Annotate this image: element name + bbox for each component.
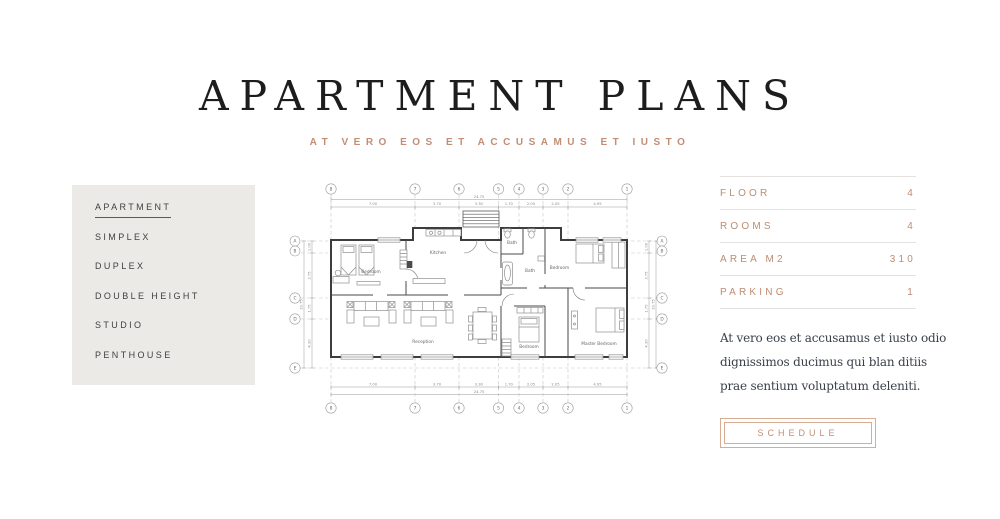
svg-text:3.75: 3.75 [644, 271, 648, 280]
spec-value: 4 [907, 221, 916, 232]
sidebar-item-simplex[interactable]: SIMPLEX [95, 232, 255, 262]
svg-text:1.00: 1.00 [307, 242, 311, 251]
sidebar-item-duplex[interactable]: DUPLEX [95, 261, 255, 291]
spec-row-rooms: ROOMS 4 [720, 210, 916, 243]
spec-value: 1 [907, 287, 916, 298]
svg-text:E: E [294, 366, 297, 372]
svg-text:2: 2 [567, 187, 570, 193]
svg-text:7.00: 7.00 [369, 202, 378, 206]
svg-text:1.00: 1.00 [644, 242, 648, 251]
spec-label: AREA M2 [720, 254, 786, 265]
svg-text:5: 5 [497, 406, 500, 412]
spec-value: 310 [890, 254, 916, 265]
room-label-bath-large: Bath [525, 268, 535, 274]
svg-text:8: 8 [330, 187, 333, 193]
schedule-button-label: SCHEDULE [757, 428, 838, 438]
spec-table: FLOOR 4 ROOMS 4 AREA M2 310 PARKING 1 [720, 176, 916, 309]
sidebar-item-studio[interactable]: STUDIO [95, 320, 255, 350]
svg-text:A: A [294, 239, 297, 245]
svg-text:10.75: 10.75 [651, 299, 655, 310]
floor-plan-svg: 24.75 7.00 3.70 3.30 1.70 2.05 2.05 4.95… [283, 178, 683, 423]
room-label-master-bedroom: Master Bedroom [581, 341, 616, 347]
svg-text:1: 1 [626, 187, 629, 193]
apartment-plans-page: APARTMENT PLANS AT VERO EOS ET ACCUSAMUS… [0, 0, 1000, 519]
floor-plan-drawing: 24.75 7.00 3.70 3.30 1.70 2.05 2.05 4.95… [283, 178, 683, 423]
svg-text:B: B [294, 249, 297, 255]
svg-text:4.95: 4.95 [593, 202, 602, 206]
svg-text:2.05: 2.05 [527, 382, 536, 386]
svg-text:4: 4 [518, 406, 521, 412]
room-label-bedroom-right: Bedroom [550, 265, 569, 271]
svg-text:E: E [661, 366, 664, 372]
svg-text:2.05: 2.05 [527, 202, 536, 206]
svg-text:4: 4 [518, 187, 521, 193]
spec-label: PARKING [720, 287, 787, 298]
sidebar-item-penthouse[interactable]: PENTHOUSE [95, 350, 255, 380]
svg-text:C: C [293, 296, 296, 302]
svg-text:4.30: 4.30 [307, 339, 311, 348]
svg-text:8: 8 [330, 406, 333, 412]
svg-text:24.75: 24.75 [474, 390, 485, 394]
svg-text:1.70: 1.70 [505, 202, 514, 206]
svg-text:3: 3 [542, 406, 545, 412]
spec-label: FLOOR [720, 188, 770, 199]
svg-text:3: 3 [542, 187, 545, 193]
room-label-reception: Reception [412, 339, 434, 345]
svg-text:1.70: 1.70 [505, 382, 514, 386]
svg-text:6: 6 [458, 406, 461, 412]
room-label-bedroom-top: Bedroom [361, 269, 380, 275]
svg-text:4.30: 4.30 [644, 339, 648, 348]
svg-text:5: 5 [497, 187, 500, 193]
page-subtitle: AT VERO EOS ET ACCUSAMUS ET IUSTO [0, 137, 1000, 148]
svg-text:7.00: 7.00 [369, 382, 378, 386]
svg-text:A: A [661, 239, 664, 245]
svg-text:C: C [660, 296, 663, 302]
svg-text:24.75: 24.75 [474, 195, 485, 199]
svg-text:2.05: 2.05 [551, 202, 560, 206]
svg-text:1: 1 [626, 406, 629, 412]
plan-type-sidebar: APARTMENT SIMPLEX DUPLEX DOUBLE HEIGHT S… [72, 185, 255, 385]
spec-row-floor: FLOOR 4 [720, 177, 916, 210]
svg-text:3.30: 3.30 [475, 382, 484, 386]
svg-text:6: 6 [458, 187, 461, 193]
svg-text:3.70: 3.70 [433, 382, 442, 386]
sidebar-item-apartment[interactable]: APARTMENT [95, 202, 255, 232]
sidebar-item-double-height[interactable]: DOUBLE HEIGHT [95, 291, 255, 321]
svg-text:2.05: 2.05 [551, 382, 560, 386]
svg-text:1.75: 1.75 [644, 304, 648, 313]
room-label-bedroom-bottom: Bedroom [519, 344, 538, 350]
svg-text:3.75: 3.75 [307, 271, 311, 280]
room-label-kitchen: Kitchen [430, 250, 446, 256]
spec-row-area: AREA M2 310 [720, 243, 916, 276]
svg-text:4.95: 4.95 [593, 382, 602, 386]
svg-text:7: 7 [414, 406, 417, 412]
schedule-button[interactable]: SCHEDULE [720, 418, 876, 448]
svg-text:2: 2 [567, 406, 570, 412]
svg-text:B: B [661, 249, 664, 255]
spec-value: 4 [907, 188, 916, 199]
svg-text:3.70: 3.70 [433, 202, 442, 206]
spec-label: ROOMS [720, 221, 774, 232]
apartment-description: At vero eos et accusamus et iusto odio d… [720, 326, 916, 398]
svg-text:3.30: 3.30 [475, 202, 484, 206]
apartment-details-panel: FLOOR 4 ROOMS 4 AREA M2 310 PARKING 1 At… [720, 176, 916, 448]
spec-row-parking: PARKING 1 [720, 276, 916, 309]
page-title: APARTMENT PLANS [0, 72, 1000, 120]
svg-text:1.75: 1.75 [307, 304, 311, 313]
room-label-bath-small: Bath [507, 240, 517, 246]
svg-text:7: 7 [414, 187, 417, 193]
